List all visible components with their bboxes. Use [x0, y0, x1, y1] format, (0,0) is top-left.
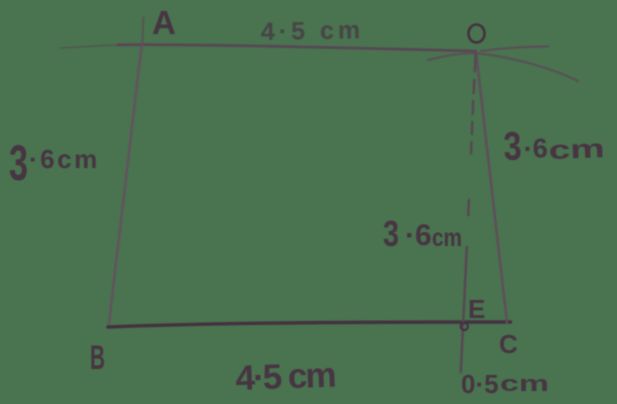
- svg-text:·6: ·6: [405, 219, 432, 252]
- svg-text:0·5: 0·5: [461, 369, 499, 399]
- svg-text:4·5 cm: 4·5 cm: [235, 356, 335, 398]
- svg-text:B: B: [90, 339, 105, 377]
- svg-text:cm: cm: [548, 133, 605, 165]
- svg-text:cm: cm: [500, 371, 549, 396]
- svg-text:3: 3: [383, 213, 399, 254]
- svg-text:3: 3: [503, 124, 523, 169]
- svg-text:·6cm: ·6cm: [29, 144, 100, 174]
- svg-text:3: 3: [9, 135, 28, 191]
- svg-text:C: C: [499, 329, 518, 359]
- svg-text:E: E: [468, 294, 485, 324]
- svg-text:·6: ·6: [523, 133, 548, 164]
- svg-text:4·5 cm: 4·5 cm: [261, 16, 365, 46]
- svg-text:A: A: [152, 4, 176, 41]
- svg-text:cm: cm: [432, 224, 462, 252]
